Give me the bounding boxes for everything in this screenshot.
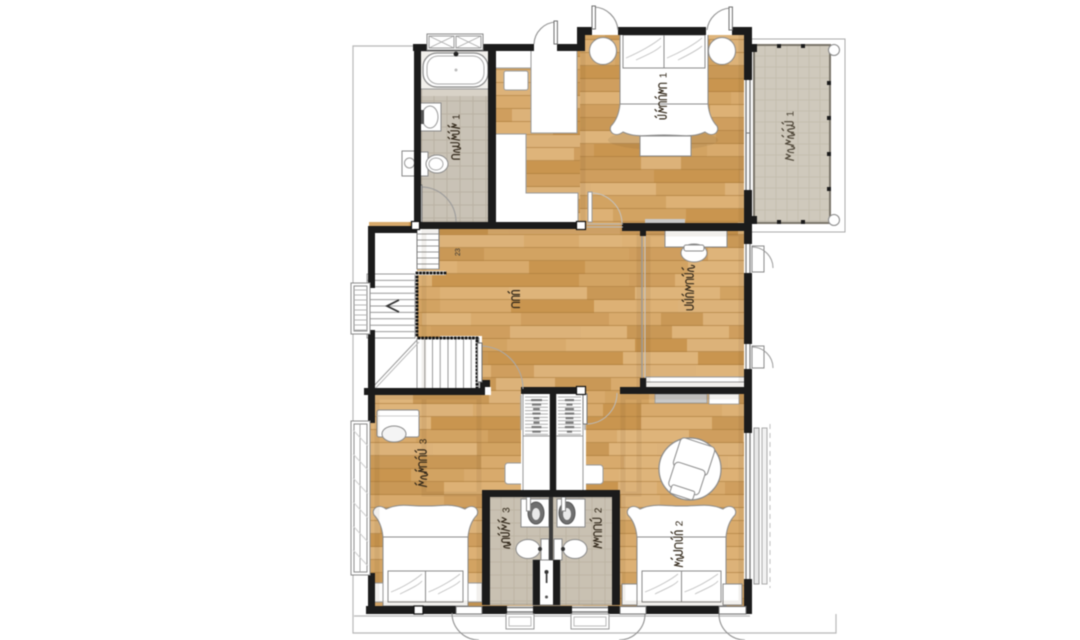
svg-text:2: 2 [675, 520, 686, 526]
svg-text:2: 2 [594, 507, 605, 513]
svg-text:1: 1 [452, 114, 463, 120]
svg-text:23: 23 [455, 248, 462, 256]
svg-text:3: 3 [419, 438, 430, 444]
svg-text:1: 1 [786, 111, 797, 117]
svg-text:1: 1 [659, 72, 670, 78]
svg-text:3: 3 [502, 507, 513, 513]
